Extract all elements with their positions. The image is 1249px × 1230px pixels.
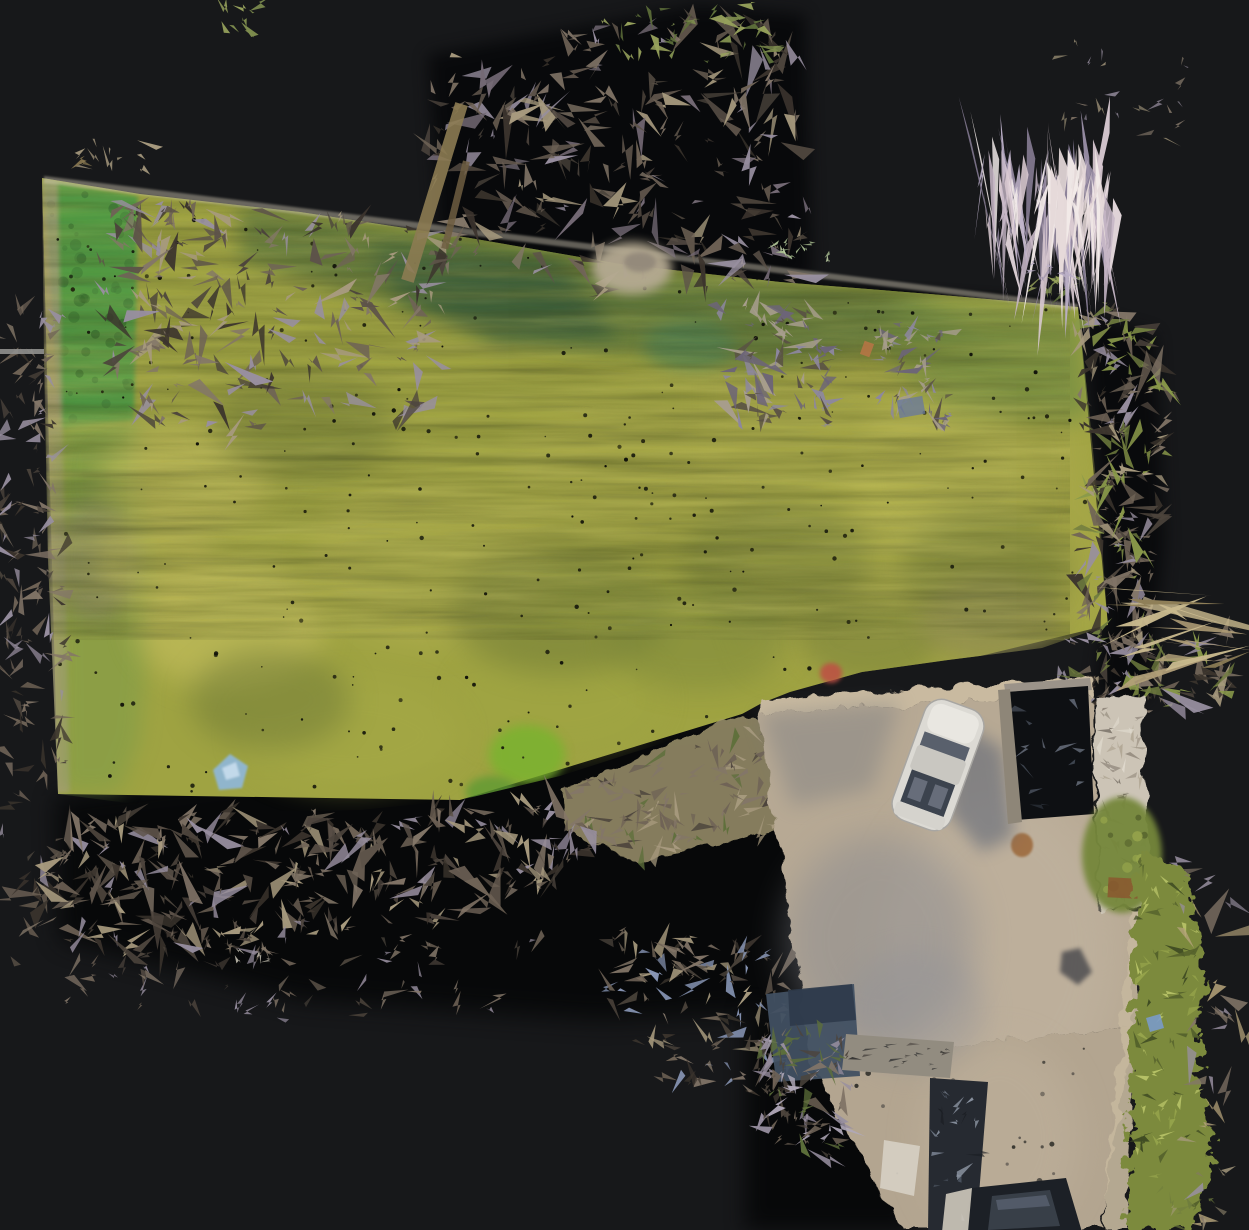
wall-corner-blue-top [788,984,856,1026]
photogrammetry-3d-viewport[interactable] [0,0,1249,1230]
vivid-green-blob [489,725,565,785]
rust-dot [1011,833,1033,857]
gray-line-artifact [0,349,44,354]
red-marker-dot [820,663,842,683]
dark-car-roof [988,1190,1060,1230]
beige-blob-core [624,252,656,272]
mesh-render-canvas[interactable] [0,0,1249,1230]
white-patch-road-left [880,1140,920,1196]
white-patch-by-dark-car [942,1188,972,1230]
olive-patch-5 [190,650,350,750]
brown-square [1107,877,1138,899]
